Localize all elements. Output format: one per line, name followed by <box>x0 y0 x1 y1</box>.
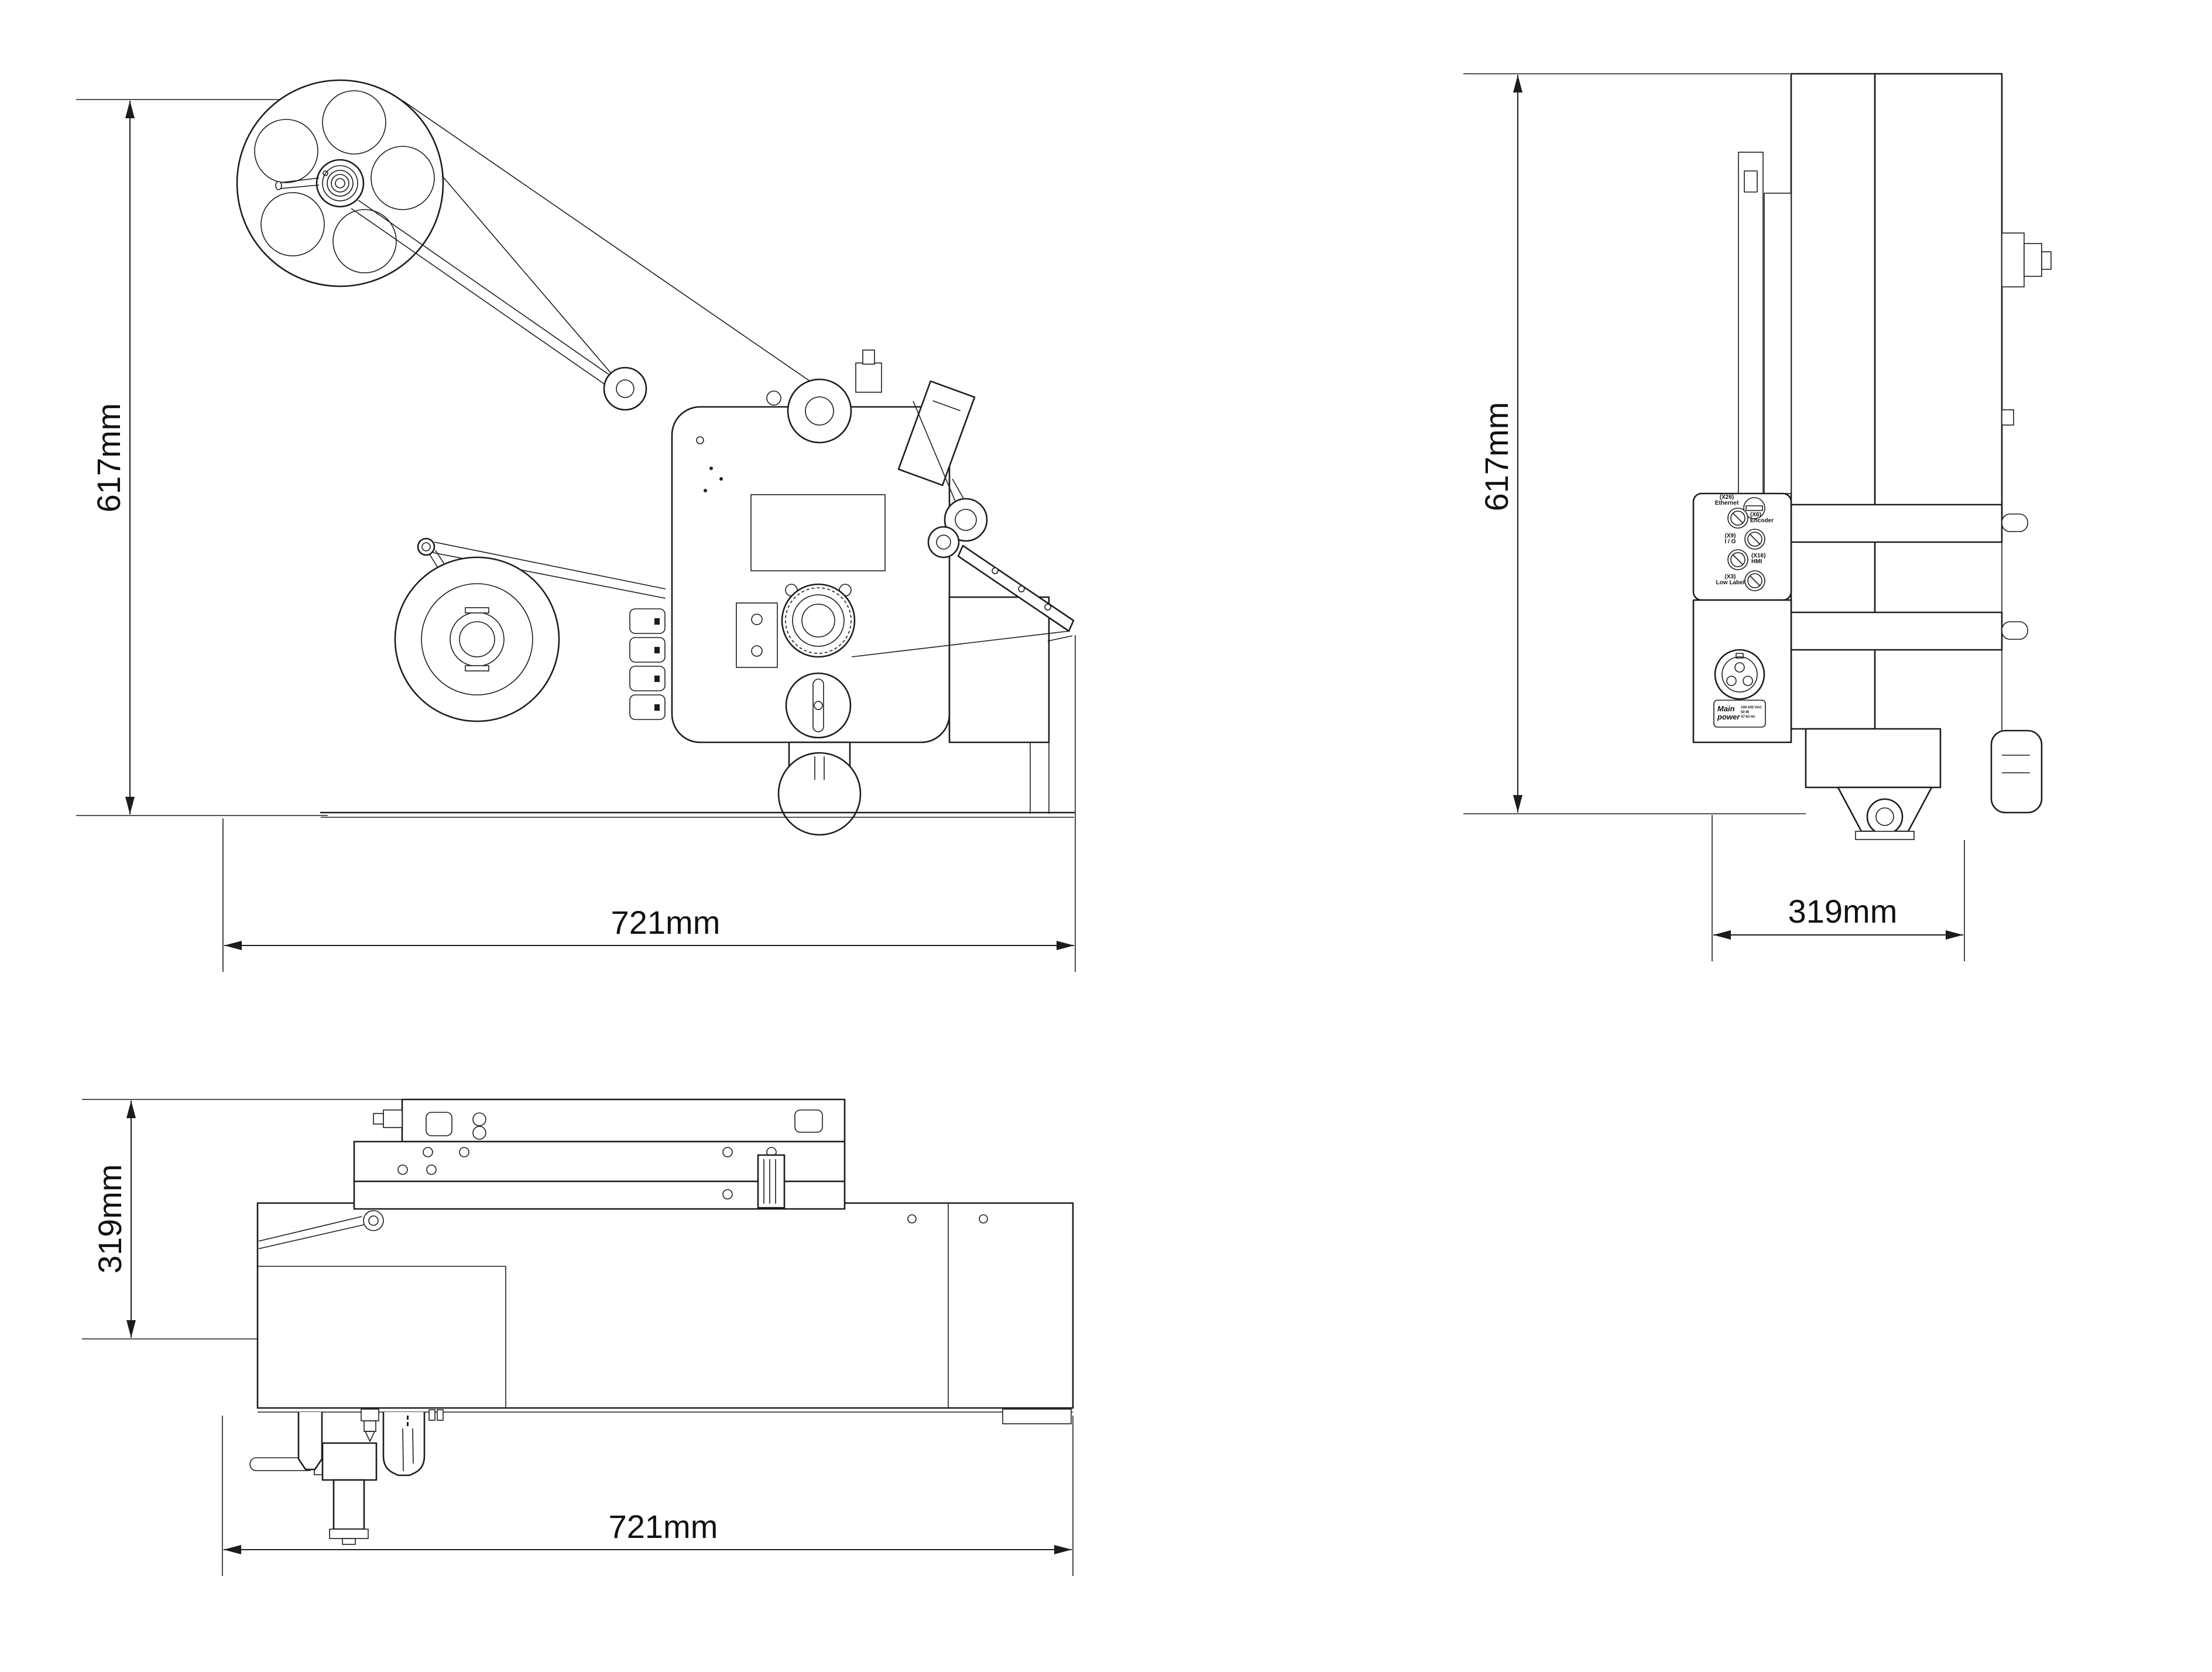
body-panel-window <box>751 495 885 571</box>
dim-label-top-width: 721mm <box>609 1508 718 1545</box>
main-power-spec-3: 47-63 Hz <box>1741 715 1755 719</box>
hmi-port-label: HMI <box>1751 559 1762 565</box>
clamp-handle <box>1991 731 2042 813</box>
front-view: 617mm <box>76 80 1075 972</box>
applicator-body <box>630 350 949 742</box>
technical-drawing-page: 617mm <box>0 0 2212 1672</box>
machine-base <box>321 742 1074 835</box>
main-power-spec-1: 100-240 VAC <box>1741 706 1762 710</box>
main-power-box: Main power 100-240 VAC 50 W 47-63 Hz <box>1693 600 1791 742</box>
dim-label-front-width: 721mm <box>611 904 721 941</box>
side-view: 617mm <box>1463 74 2051 961</box>
main-power-connector <box>1715 650 1764 699</box>
unwind-reel <box>237 80 443 286</box>
ethernet-port-label: Ethernet <box>1715 500 1739 506</box>
side-lower-block <box>1806 729 2042 840</box>
main-power-title-2: power <box>1717 712 1740 721</box>
dimension-drawing-canvas: 617mm <box>0 0 2212 1672</box>
dim-label-side-height: 617mm <box>1478 402 1515 512</box>
connector-panel: (X26) Ethernet (X6) Encoder (X9) I / O (… <box>1693 494 1791 600</box>
main-power-spec-2: 50 W <box>1741 711 1749 714</box>
low-label-port-label: Low Label <box>1716 580 1745 586</box>
rewind-roll <box>395 539 666 721</box>
encoder-port-label: Encoder <box>1750 518 1774 524</box>
nip-handle-roller <box>786 673 850 738</box>
hmi-port <box>1728 550 1748 570</box>
main-power-title-1: Main <box>1717 704 1735 713</box>
dim-label-top-depth: 319mm <box>91 1164 128 1274</box>
pneumatic-fittings <box>630 609 665 719</box>
mounting-bracket <box>949 597 1049 742</box>
label-web-path <box>403 101 811 382</box>
dim-label-front-height: 617mm <box>90 403 127 513</box>
top-view: 319mm <box>82 1099 1073 1576</box>
io-port-label: I / O <box>1725 539 1736 545</box>
top-base-plate <box>258 1203 1073 1412</box>
dim-label-side-depth: 319mm <box>1788 893 1898 930</box>
side-depth-dimension: 319mm <box>1712 815 1964 961</box>
io-port <box>1745 529 1765 549</box>
low-label-port <box>1745 571 1765 591</box>
encoder-port <box>1728 508 1748 528</box>
